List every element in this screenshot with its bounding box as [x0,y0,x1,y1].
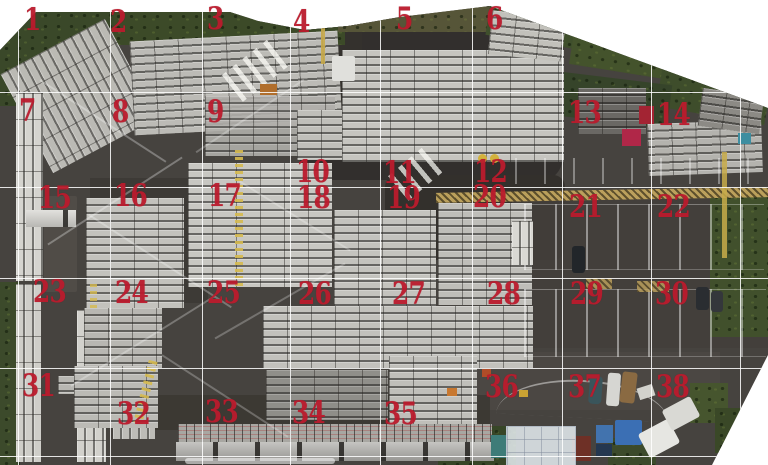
zone-label-27: 27 [392,279,425,310]
orange-machine-gate [260,84,277,95]
zone-label-23: 23 [33,277,66,308]
yellow-line-gate [321,28,325,64]
zone-label-34: 34 [292,398,325,429]
zone-label-7: 7 [19,96,35,127]
white-post-row [515,158,768,184]
grid-line-vertical-1 [18,0,19,465]
grid-line-vertical-6 [472,0,473,465]
stack-block-zone5 [342,50,564,162]
zone-label-33: 33 [205,397,238,428]
zone-label-13: 13 [568,98,601,129]
zone-label-22: 22 [657,192,690,223]
crane-truss-3 [90,284,97,312]
white-curb-bottom [185,458,335,464]
parked-car-dark [572,246,585,273]
white-vans-parking [512,221,533,265]
vegetation-br-3 [715,408,745,453]
parking-slots-row1 [524,204,764,270]
white-canopy [506,426,576,465]
forklift-yellow [519,390,528,397]
zone-label-19: 19 [387,183,420,214]
zone-label-5: 5 [396,4,412,35]
zone-label-3: 3 [207,4,223,35]
yard-orthophoto-canvas: 1234567891011121314151617181920212223242… [0,0,768,465]
zone-label-1: 1 [24,5,40,36]
grid-line-horizontal-1 [0,92,768,93]
grid-line-vertical-9 [740,0,741,465]
zone-label-37: 37 [568,372,601,403]
zone-label-20: 20 [473,182,506,213]
grid-line-vertical-2 [110,0,111,465]
crane-truss-1 [235,150,243,288]
zone-label-6: 6 [486,4,502,35]
forklift-orange [447,388,457,396]
parked-car-3 [711,291,723,312]
hedge-top-right [338,0,498,32]
stack-sparse-zone33 [266,370,388,420]
zone-label-26: 26 [298,279,331,310]
stack-small-zone10 [297,110,342,160]
grid-line-vertical-7 [562,0,563,465]
zone-label-21: 21 [569,192,602,223]
zone-label-9: 9 [207,97,223,128]
stack-block-zone24 [84,308,162,368]
zone-label-8: 8 [112,97,128,128]
zone-label-4: 4 [293,7,309,38]
zone-label-28: 28 [487,279,520,310]
grid-line-horizontal-5 [0,456,768,457]
zone-label-2: 2 [110,7,126,38]
zone-label-15: 15 [38,183,71,214]
zone-label-14: 14 [657,100,690,131]
truck-cab-white [606,373,621,407]
parked-car-2 [696,287,709,310]
zone-label-31: 31 [22,371,55,402]
grid-line-vertical-5 [380,0,381,465]
teal-equipment [491,435,507,458]
blue-pallets [596,425,613,443]
grid-line-vertical-8 [651,0,652,465]
grid-line-horizontal-4 [0,368,768,369]
grid-line-vertical-4 [290,0,291,465]
blue-container [615,420,642,445]
zone-label-36: 36 [485,372,518,403]
zone-label-24: 24 [115,278,148,309]
zone-label-29: 29 [570,279,603,310]
magenta-item-zone13 [622,129,641,146]
zone-label-25: 25 [207,278,240,309]
zone-label-16: 16 [114,181,147,212]
yellow-line-right [722,152,727,258]
zone-label-35: 35 [384,399,417,430]
zone-label-32: 32 [117,399,150,430]
zone-label-17: 17 [208,181,241,212]
zone-label-38: 38 [656,372,689,403]
parking-slots-row2 [524,289,766,357]
zone-label-30: 30 [655,279,688,310]
gate-hut [332,56,355,81]
zone-label-18: 18 [297,183,330,214]
grid-line-vertical-3 [202,0,203,465]
hedge-ne-2 [569,17,700,84]
